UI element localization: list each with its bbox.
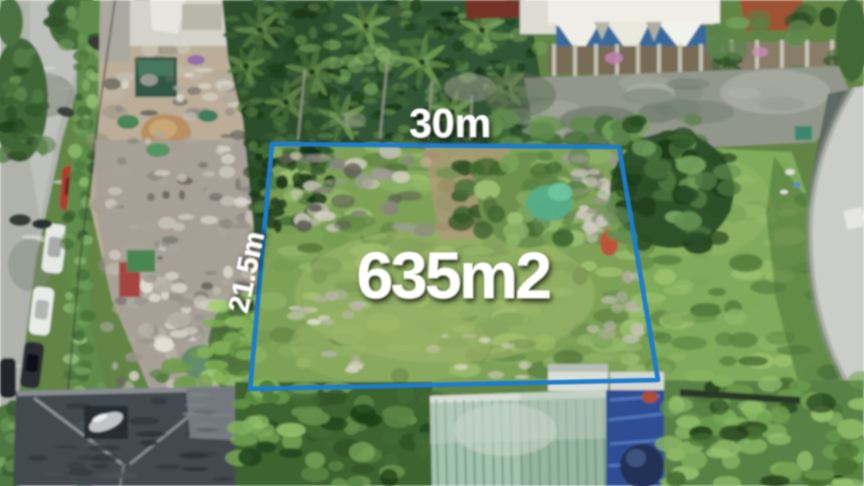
svg-text:30m: 30m [409,100,491,146]
svg-text:635m2: 635m2 [356,238,550,312]
